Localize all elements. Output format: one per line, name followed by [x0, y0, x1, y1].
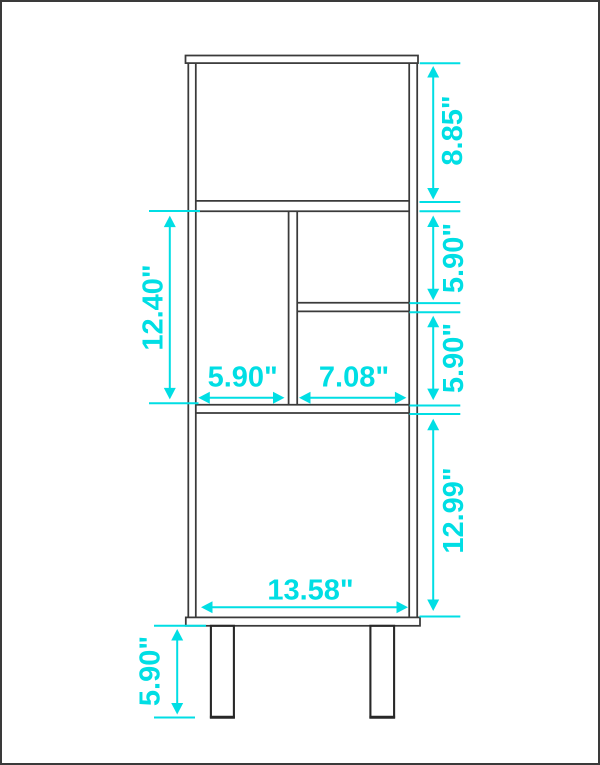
svg-text:8.85": 8.85" — [437, 95, 469, 165]
svg-text:5.90": 5.90" — [208, 361, 278, 393]
svg-text:13.58": 13.58" — [267, 574, 353, 606]
svg-text:12.99": 12.99" — [438, 467, 470, 553]
svg-text:5.90": 5.90" — [438, 223, 470, 293]
svg-text:7.08": 7.08" — [319, 361, 389, 393]
svg-text:12.40": 12.40" — [138, 264, 170, 350]
svg-text:5.90": 5.90" — [438, 323, 470, 393]
svg-text:5.90": 5.90" — [135, 636, 167, 706]
